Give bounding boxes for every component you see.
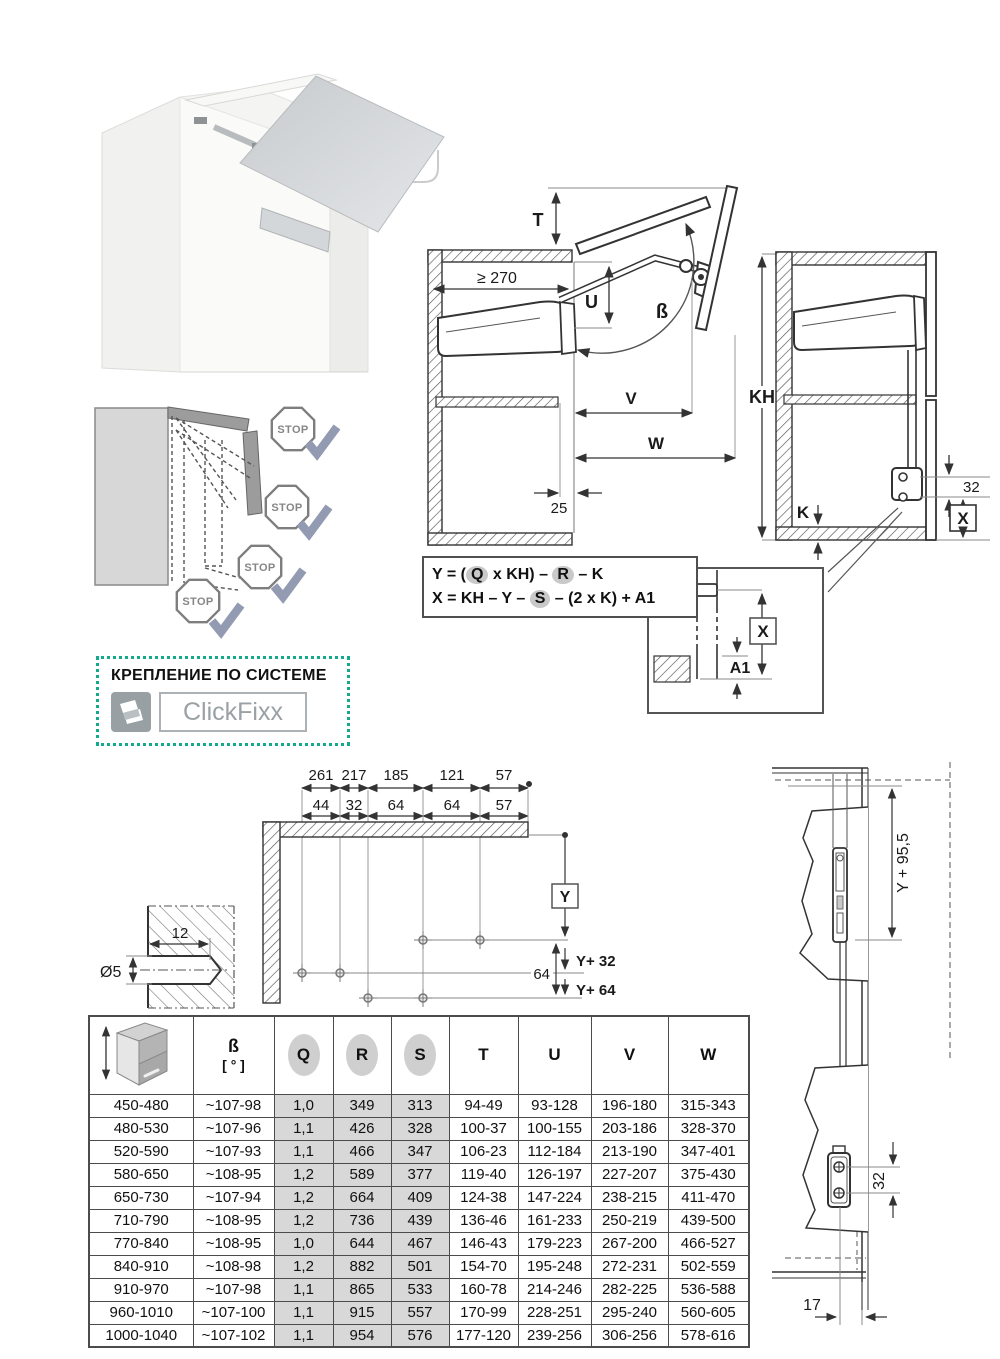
table-cell: 664: [333, 1186, 391, 1209]
table-cell: 313: [391, 1094, 449, 1117]
table-cell: 213-190: [591, 1140, 668, 1163]
table-cell: 1,1: [274, 1278, 333, 1301]
table-cell: 578-616: [668, 1324, 749, 1347]
dim-64a: 64: [388, 797, 405, 814]
table-cell: 954: [333, 1324, 391, 1347]
table-cell: 146-43: [449, 1232, 518, 1255]
dim-y-box: Y: [560, 889, 571, 906]
header-u: U: [518, 1016, 591, 1094]
table-cell: 377: [391, 1163, 449, 1186]
dim-u: U: [585, 292, 598, 312]
dim-k: K: [797, 503, 810, 522]
table-cell: 1,2: [274, 1255, 333, 1278]
dim-dia-5: Ø5: [100, 964, 121, 981]
drill-detail: 12 Ø5: [100, 906, 234, 1008]
table-cell: 349: [333, 1094, 391, 1117]
table-cell: 910-970: [89, 1278, 193, 1301]
mounting-system-title: КРЕПЛЕНИЕ ПО СИСТЕМЕ: [111, 667, 335, 685]
check-marks: [212, 427, 337, 632]
table-cell: 1,1: [274, 1140, 333, 1163]
table-cell: 480-530: [89, 1117, 193, 1140]
closed-position-diagram: KH 32 X K: [746, 252, 990, 592]
table-row: 520-590~107-931,1466347106-23112-184213-…: [89, 1140, 749, 1163]
table-header-row: ß [ ° ] Q R S T U V W: [89, 1016, 749, 1094]
table-cell: 100-37: [449, 1117, 518, 1140]
table-cell: 426: [333, 1117, 391, 1140]
table-cell: 710-790: [89, 1209, 193, 1232]
table-cell: 147-224: [518, 1186, 591, 1209]
table-cell: 295-240: [591, 1301, 668, 1324]
dim-121: 121: [439, 767, 464, 784]
dim-185: 185: [383, 767, 408, 784]
formula-x: X = KH – Y – S – (2 x K) + A1: [432, 587, 688, 611]
drilling-pattern-diagram: 261 217 185 121 57 44 32 64 64 57 Y Y+ 3…: [100, 767, 616, 1008]
side-view-diagram: Y + 95,5 32 17: [772, 762, 950, 1325]
catalog-page: T ≥ 270 ß U V W 25: [0, 0, 1000, 1359]
table-cell: 160-78: [449, 1278, 518, 1301]
table-cell: ~107-96: [193, 1117, 274, 1140]
table-cell: 1,0: [274, 1232, 333, 1255]
table-cell: 100-155: [518, 1117, 591, 1140]
table-cell: 328: [391, 1117, 449, 1140]
r-highlight: R: [552, 566, 574, 584]
header-w: W: [668, 1016, 749, 1094]
table-cell: 112-184: [518, 1140, 591, 1163]
table-cell: 450-480: [89, 1094, 193, 1117]
dim-y-95-5: Y + 95,5: [895, 833, 912, 893]
table-cell: 1,2: [274, 1186, 333, 1209]
table-cell: 770-840: [89, 1232, 193, 1255]
table-cell: ~108-95: [193, 1232, 274, 1255]
table-row: 840-910~108-981,2882501154-70195-248272-…: [89, 1255, 749, 1278]
dim-v: V: [625, 389, 637, 408]
table-cell: 466: [333, 1140, 391, 1163]
table-cell: 865: [333, 1278, 391, 1301]
table-row: 580-650~108-951,2589377119-40126-197227-…: [89, 1163, 749, 1186]
table-cell: 576: [391, 1324, 449, 1347]
stop-label: STOP: [277, 424, 308, 436]
table-cell: 560-605: [668, 1301, 749, 1324]
table-cell: 439-500: [668, 1209, 749, 1232]
header-t: T: [449, 1016, 518, 1094]
table-row: 1000-1040~107-1021,1954576177-120239-256…: [89, 1324, 749, 1347]
dim-64b: 64: [444, 797, 461, 814]
table-cell: 439: [391, 1209, 449, 1232]
dim-beta: ß: [656, 301, 668, 323]
table-row: 480-530~107-961,1426328100-37100-155203-…: [89, 1117, 749, 1140]
table-body: 450-480~107-981,034931394-4993-128196-18…: [89, 1094, 749, 1347]
table-cell: 533: [391, 1278, 449, 1301]
dim-t: T: [533, 210, 544, 230]
table-row: 910-970~107-981,1865533160-78214-246282-…: [89, 1278, 749, 1301]
table-cell: 161-233: [518, 1209, 591, 1232]
table-cell: 1,2: [274, 1209, 333, 1232]
door-closed-upper: [926, 252, 936, 396]
table-cell: 644: [333, 1232, 391, 1255]
table-row: 710-790~108-951,2736439136-46161-233250-…: [89, 1209, 749, 1232]
dim-a1: A1: [730, 660, 751, 677]
table-cell: 736: [333, 1209, 391, 1232]
screw: [695, 584, 717, 596]
damper-unit-closed: [794, 296, 920, 351]
dim-w: W: [648, 434, 665, 453]
table-cell: 214-246: [518, 1278, 591, 1301]
header-cabinet-height: [89, 1016, 193, 1094]
table-cell: ~107-102: [193, 1324, 274, 1347]
table-cell: 195-248: [518, 1255, 591, 1278]
table-cell: 196-180: [591, 1094, 668, 1117]
product-photo: [102, 74, 444, 372]
table-cell: ~108-95: [193, 1209, 274, 1232]
table-cell: 501: [391, 1255, 449, 1278]
clickfixx-badge: КРЕПЛЕНИЕ ПО СИСТЕМЕ ClickFixx: [96, 656, 350, 746]
table-cell: 203-186: [591, 1117, 668, 1140]
s-highlight: S: [530, 590, 551, 608]
table-cell: 227-207: [591, 1163, 668, 1186]
table-cell: ~108-98: [193, 1255, 274, 1278]
table-cell: 409: [391, 1186, 449, 1209]
table-cell: 502-559: [668, 1255, 749, 1278]
table-cell: 520-590: [89, 1140, 193, 1163]
dim-screw-gap-32: 32: [963, 479, 980, 496]
cabinet-side: [95, 408, 168, 585]
table-cell: 1,2: [274, 1163, 333, 1186]
table-cell: 960-1010: [89, 1301, 193, 1324]
table-cell: 282-225: [591, 1278, 668, 1301]
table-row: 960-1010~107-1001,1915557170-99228-25129…: [89, 1301, 749, 1324]
table-row: 450-480~107-981,034931394-4993-128196-18…: [89, 1094, 749, 1117]
stop-label: STOP: [244, 562, 275, 574]
table-cell: 177-120: [449, 1324, 518, 1347]
dim-57a: 57: [496, 767, 513, 784]
table-cell: 328-370: [668, 1117, 749, 1140]
table-cell: 306-256: [591, 1324, 668, 1347]
clickfixx-logo: ClickFixx: [159, 692, 307, 732]
table-cell: 136-46: [449, 1209, 518, 1232]
door-bar-open: [168, 407, 249, 431]
table-cell: 124-38: [449, 1186, 518, 1209]
formula-box: Y = (Q x KH) – R – K X = KH – Y – S – (2…: [422, 556, 698, 618]
dim-screw-gap-32-side: 32: [871, 1172, 888, 1190]
table-cell: 915: [333, 1301, 391, 1324]
table-cell: 272-231: [591, 1255, 668, 1278]
table-cell: 250-219: [591, 1209, 668, 1232]
table-cell: 467: [391, 1232, 449, 1255]
table-cell: 347: [391, 1140, 449, 1163]
dim-x-detail: X: [757, 622, 769, 641]
drill-holes: [293, 931, 489, 1007]
table-cell: ~107-93: [193, 1140, 274, 1163]
dim-gap64: 64: [533, 966, 550, 983]
q-highlight: Q: [466, 566, 488, 584]
table-cell: 375-430: [668, 1163, 749, 1186]
cabinet-height-icon: [95, 1017, 187, 1089]
table-cell: 154-70: [449, 1255, 518, 1278]
table-cell: 557: [391, 1301, 449, 1324]
clickfixx-icon: [111, 692, 151, 732]
table-cell: 411-470: [668, 1186, 749, 1209]
table-cell: 238-215: [591, 1186, 668, 1209]
table-cell: 1,1: [274, 1117, 333, 1140]
door-bar-mid: [243, 431, 262, 515]
table-cell: 119-40: [449, 1163, 518, 1186]
dim-x-box: X: [957, 509, 969, 528]
table-cell: 882: [333, 1255, 391, 1278]
table-cell: ~107-100: [193, 1301, 274, 1324]
dim-44: 44: [313, 797, 330, 814]
stop-label: STOP: [182, 596, 213, 608]
dim-kh: KH: [749, 387, 775, 407]
table-cell: 589: [333, 1163, 391, 1186]
table-row: 650-730~107-941,2664409124-38147-224238-…: [89, 1186, 749, 1209]
table-cell: 840-910: [89, 1255, 193, 1278]
formula-y: Y = (Q x KH) – R – K: [432, 563, 688, 587]
table-cell: ~107-98: [193, 1094, 274, 1117]
header-q: Q: [274, 1016, 333, 1094]
dim-depth-12: 12: [172, 925, 189, 942]
table-cell: 94-49: [449, 1094, 518, 1117]
dim-261: 261: [308, 767, 333, 784]
dim-217: 217: [341, 767, 366, 784]
dimension-table: ß [ ° ] Q R S T U V W 450-480~107-981,03…: [88, 1015, 750, 1348]
door-flap-upper: [576, 197, 710, 254]
stop-diagram: STOP STOP STOP STOP: [95, 407, 337, 632]
table-cell: 126-197: [518, 1163, 591, 1186]
stop-label: STOP: [271, 502, 302, 514]
table-cell: 315-343: [668, 1094, 749, 1117]
table-cell: 179-223: [518, 1232, 591, 1255]
dim-57b: 57: [496, 797, 513, 814]
header-beta: ß [ ° ]: [193, 1016, 274, 1094]
table-cell: 239-256: [518, 1324, 591, 1347]
door-closed-lower: [926, 400, 936, 540]
dim-32: 32: [346, 797, 363, 814]
open-position-diagram: T ≥ 270 ß U V W 25: [428, 186, 738, 545]
table-cell: 536-588: [668, 1278, 749, 1301]
table-cell: 170-99: [449, 1301, 518, 1324]
header-s: S: [391, 1016, 449, 1094]
table-cell: 580-650: [89, 1163, 193, 1186]
dim-y32: Y+ 32: [576, 953, 616, 970]
dim-front-25: 25: [551, 500, 568, 517]
table-cell: 106-23: [449, 1140, 518, 1163]
table-cell: ~107-98: [193, 1278, 274, 1301]
table-row: 770-840~108-951,0644467146-43179-223267-…: [89, 1232, 749, 1255]
header-r: R: [333, 1016, 391, 1094]
table-cell: 1000-1040: [89, 1324, 193, 1347]
table-cell: 650-730: [89, 1186, 193, 1209]
table-cell: 267-200: [591, 1232, 668, 1255]
dim-offset-17: 17: [803, 1297, 821, 1314]
table-cell: 1,0: [274, 1094, 333, 1117]
damper-unit-open: [438, 302, 566, 357]
table-cell: 1,1: [274, 1301, 333, 1324]
table-cell: 93-128: [518, 1094, 591, 1117]
table-cell: ~108-95: [193, 1163, 274, 1186]
header-v: V: [591, 1016, 668, 1094]
table-cell: 466-527: [668, 1232, 749, 1255]
table-cell: ~107-94: [193, 1186, 274, 1209]
table-cell: 228-251: [518, 1301, 591, 1324]
table-cell: 347-401: [668, 1140, 749, 1163]
table-cell: 1,1: [274, 1324, 333, 1347]
dim-y64: Y+ 64: [576, 982, 616, 999]
hinge: [194, 117, 207, 124]
dim-min-depth: ≥ 270: [477, 270, 517, 287]
